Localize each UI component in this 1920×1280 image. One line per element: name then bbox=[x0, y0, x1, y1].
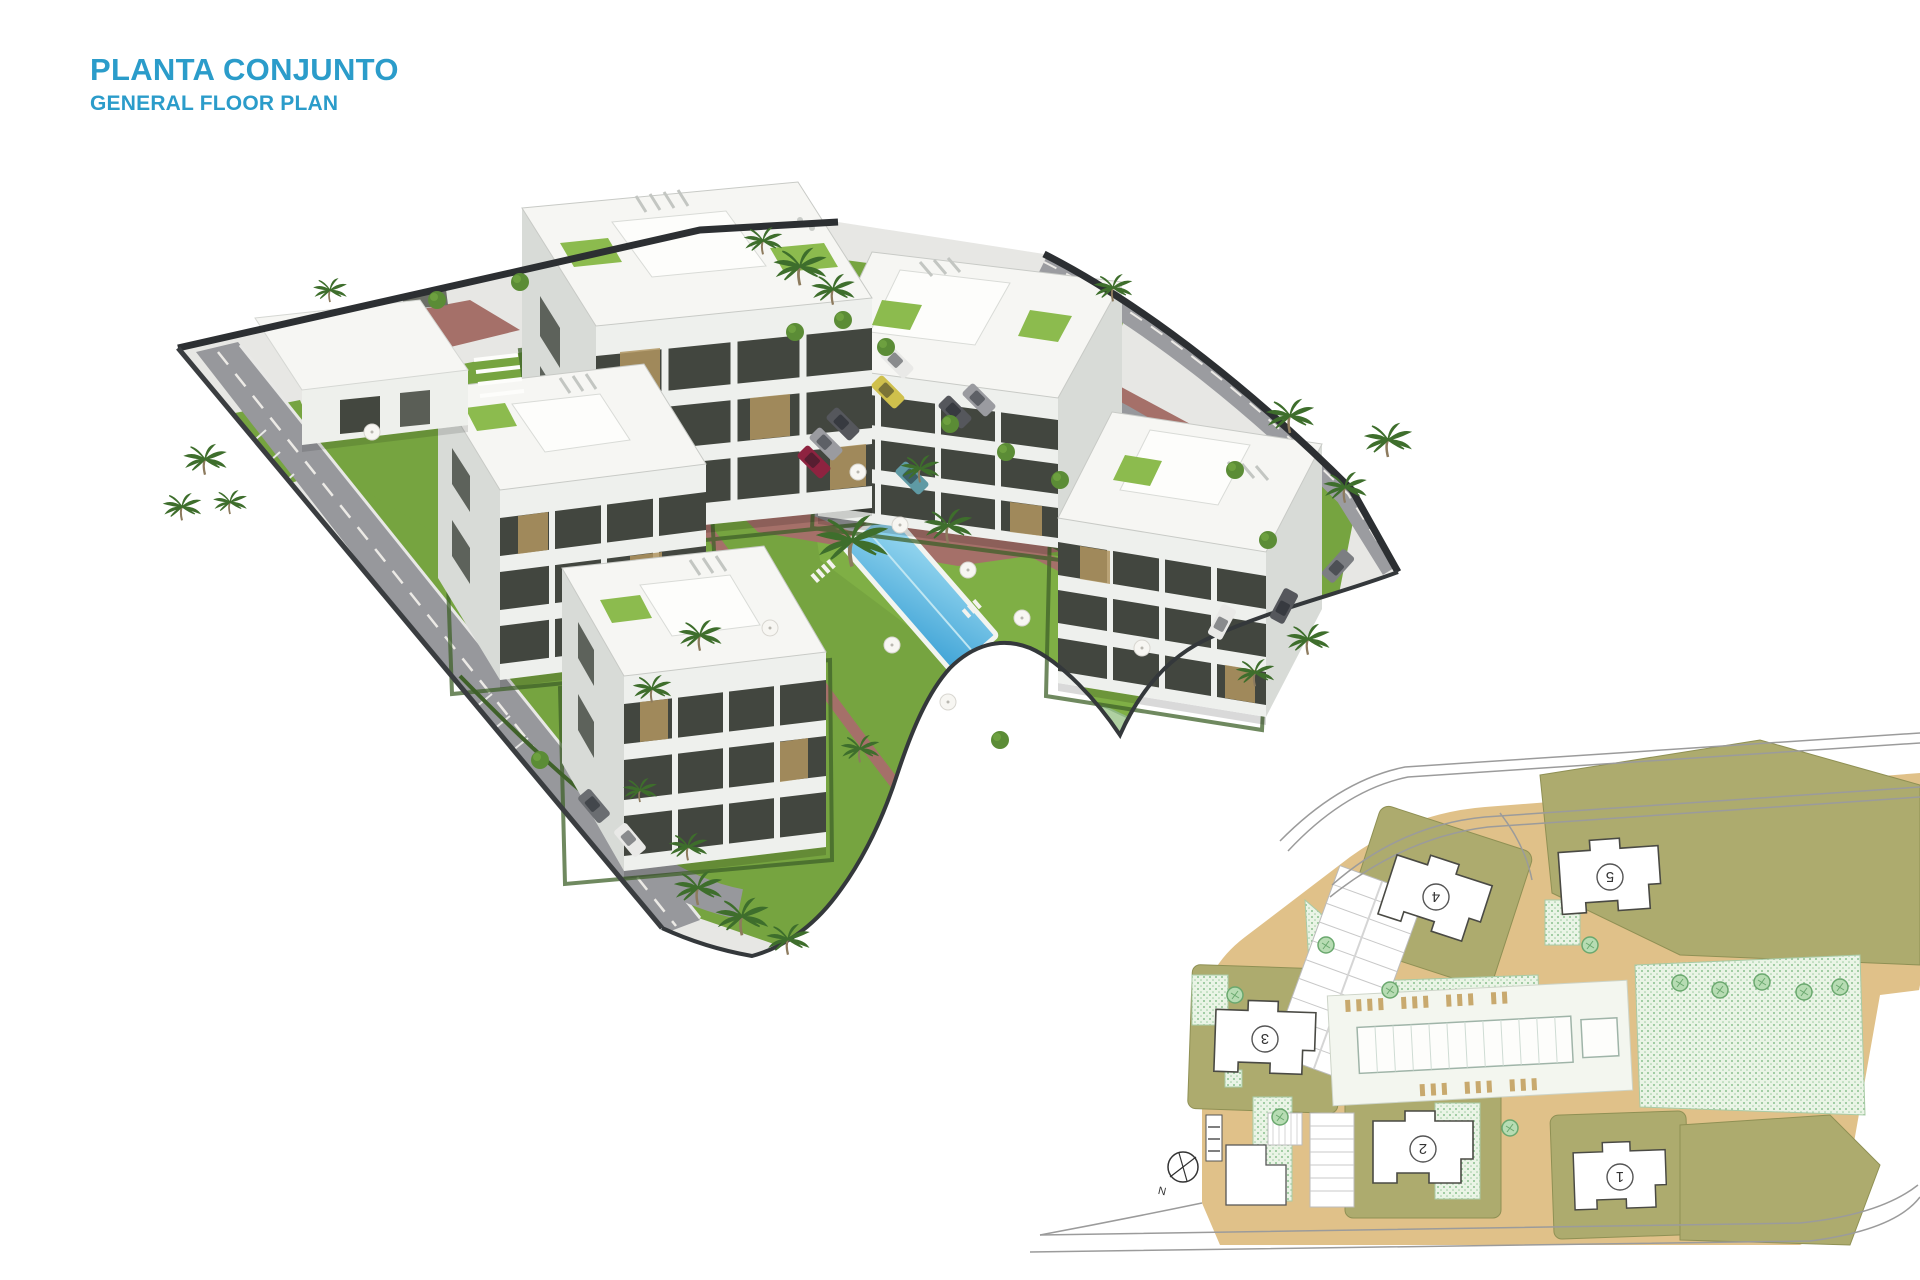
plan-pool-deck bbox=[1327, 980, 1632, 1106]
building-number-label: 5 bbox=[1606, 868, 1614, 885]
plan-kiosk bbox=[1206, 1115, 1222, 1161]
compass-label: N bbox=[1157, 1183, 1167, 1196]
brochure-page: PLANTA CONJUNTO GENERAL FLOOR PLAN bbox=[0, 0, 1920, 1280]
building-number-label: 2 bbox=[1419, 1140, 1427, 1157]
building-number-label: 3 bbox=[1261, 1030, 1269, 1047]
apartment-building bbox=[562, 546, 826, 879]
building-number-label: 4 bbox=[1432, 888, 1440, 905]
site-plan-inset: 1 2 3 4 5 N bbox=[980, 645, 1920, 1280]
building-number-label: 1 bbox=[1616, 1168, 1624, 1185]
north-arrow-icon: N bbox=[1157, 1152, 1198, 1197]
